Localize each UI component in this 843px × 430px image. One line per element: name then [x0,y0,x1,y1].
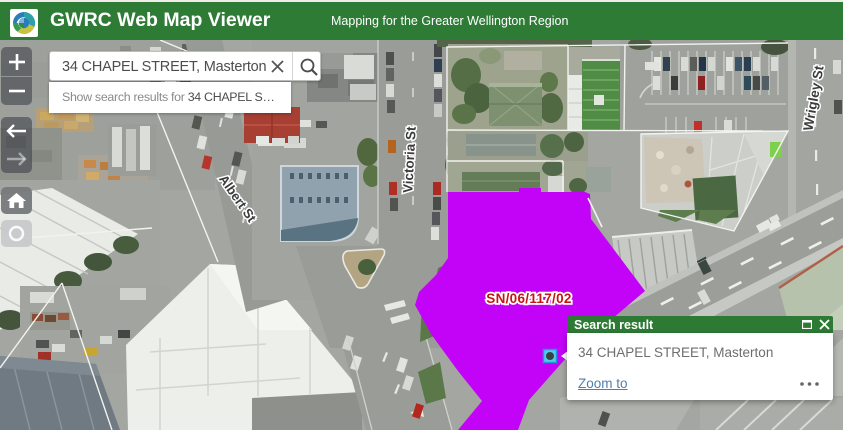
svg-text:SN/06/117/02: SN/06/117/02 [486,291,571,306]
